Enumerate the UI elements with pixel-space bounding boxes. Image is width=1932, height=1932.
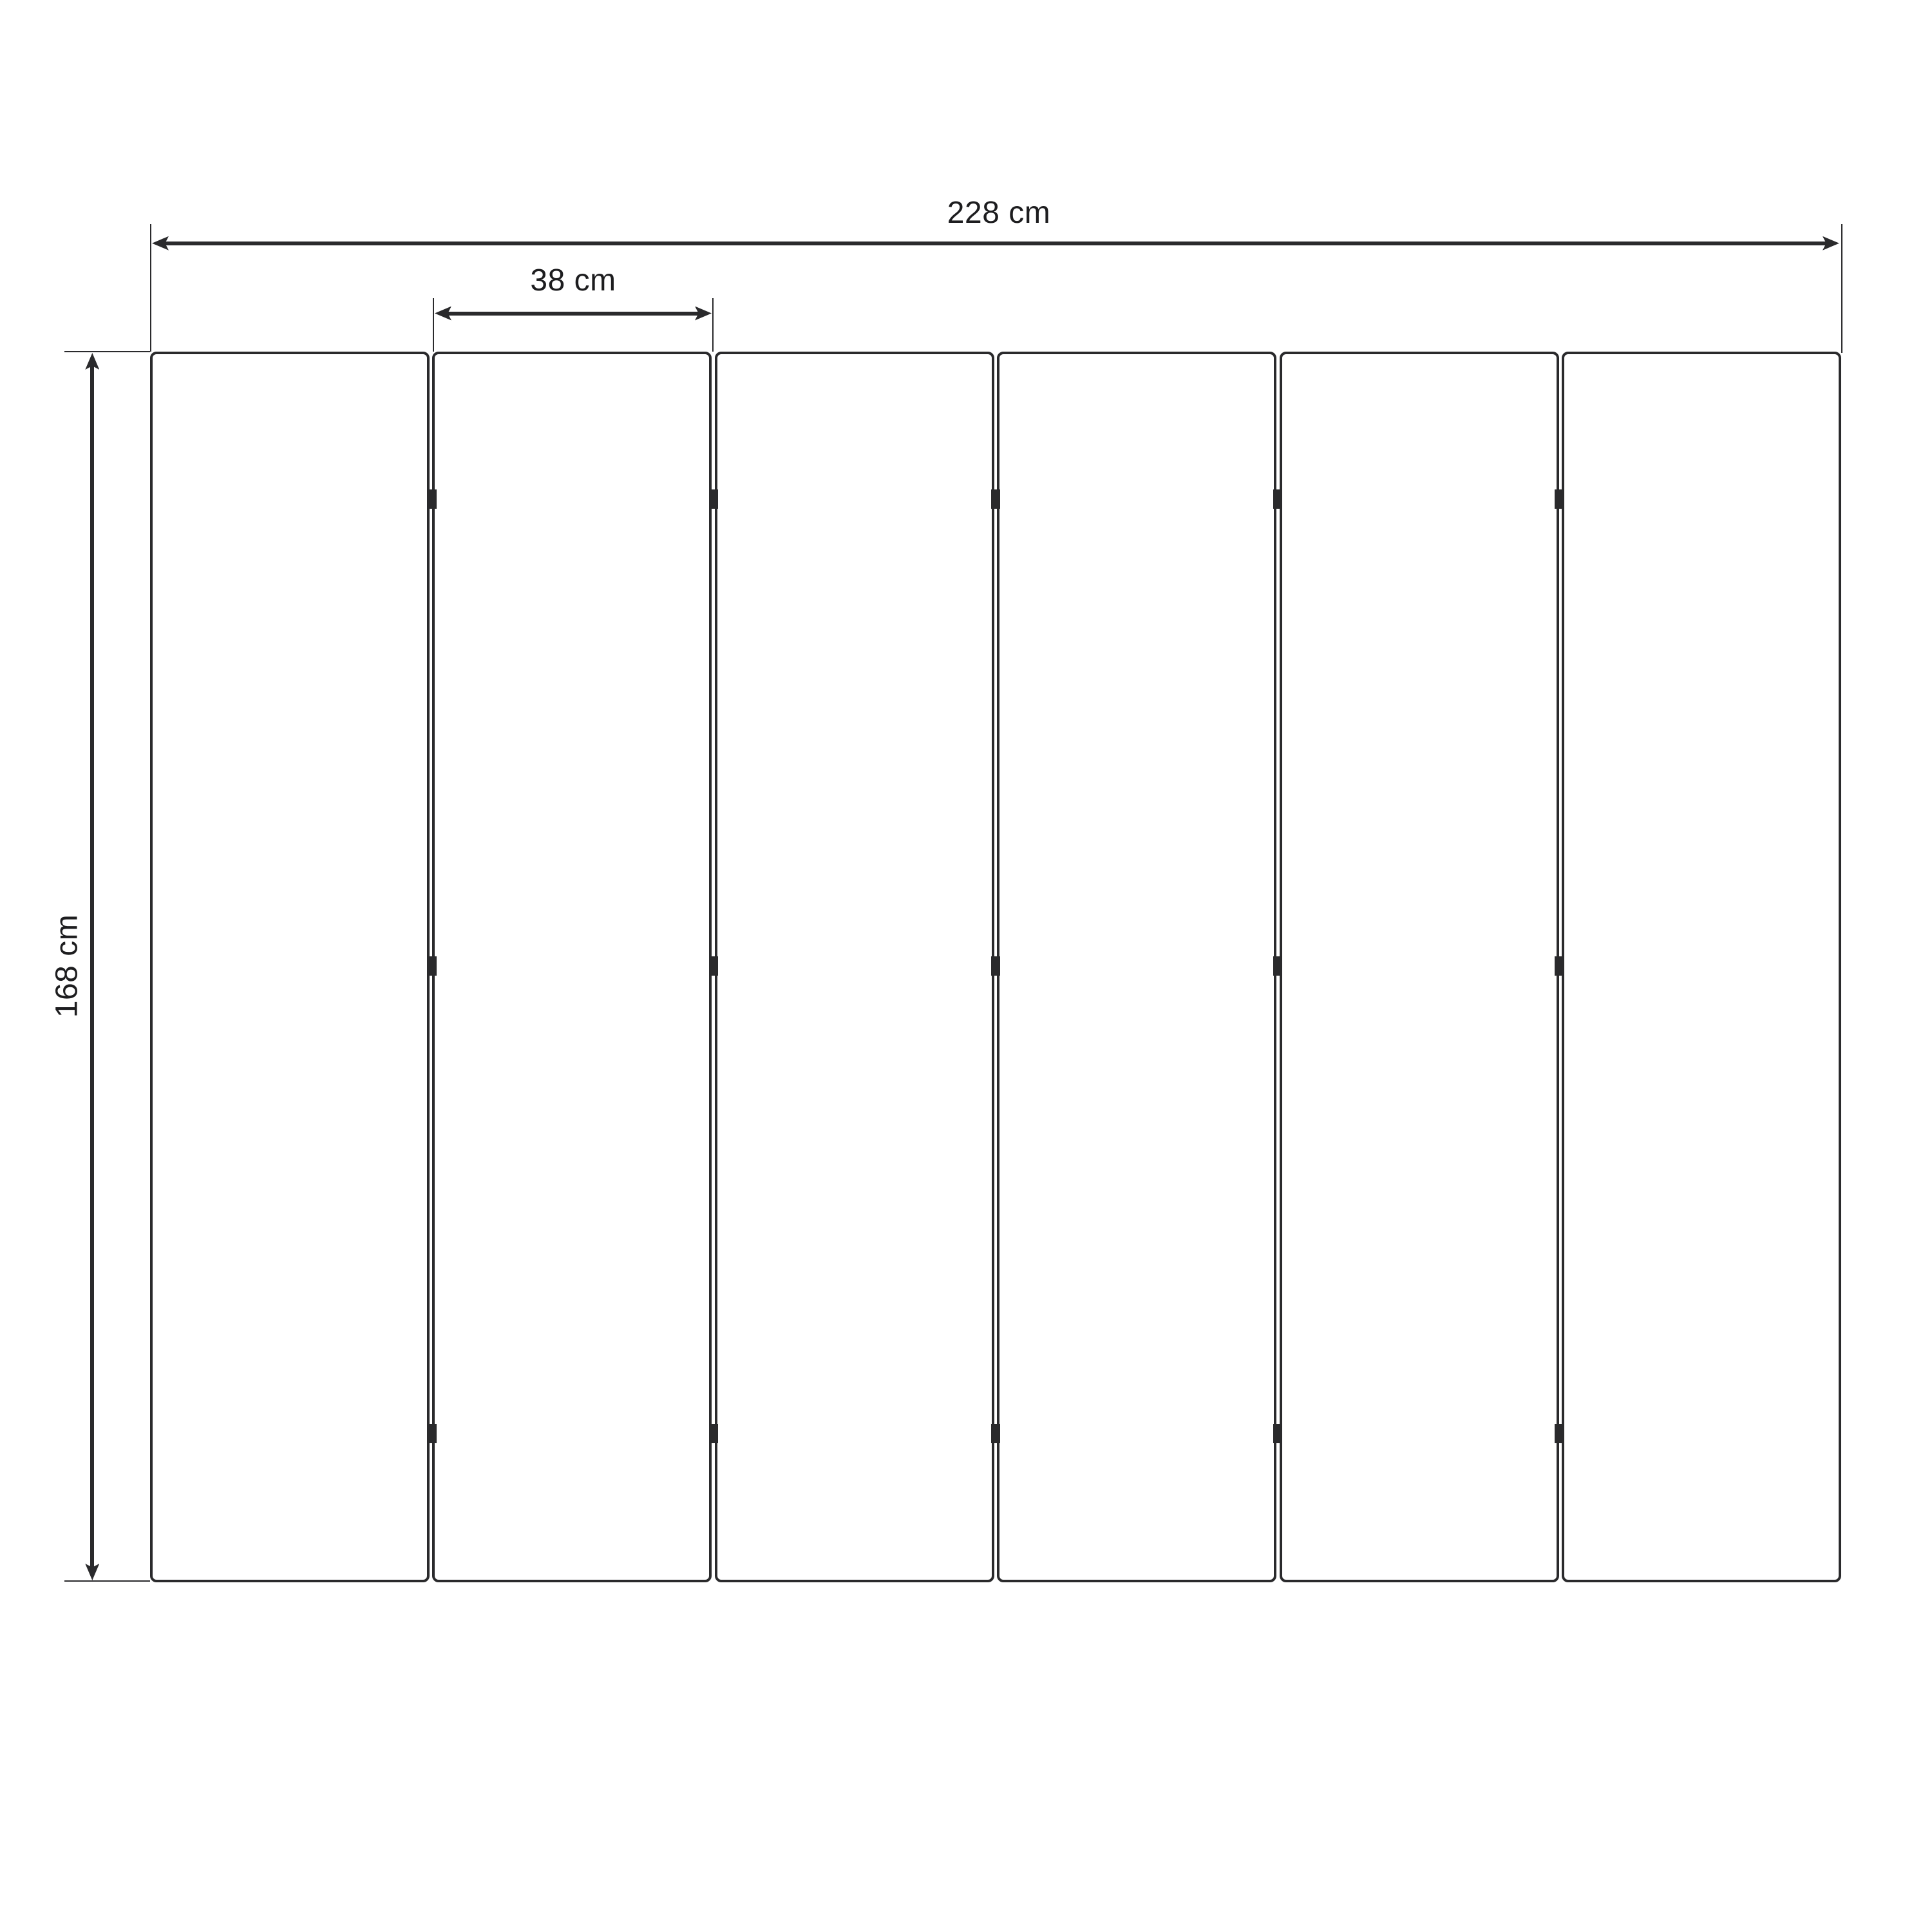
hinge-mark bbox=[991, 1424, 1000, 1443]
extension-line-panel-left bbox=[433, 298, 434, 352]
hinge-mark bbox=[428, 489, 437, 509]
hinge-mark bbox=[709, 1424, 718, 1443]
total-width-label: 228 cm bbox=[947, 195, 1050, 231]
hinge-mark bbox=[1273, 956, 1282, 976]
dimension-line-panel bbox=[446, 312, 701, 316]
hinge-mark bbox=[1273, 1424, 1282, 1443]
extension-line-height-bottom bbox=[64, 1580, 150, 1582]
panel-2 bbox=[432, 352, 712, 1582]
panel-1 bbox=[150, 352, 430, 1582]
panel-4 bbox=[997, 352, 1276, 1582]
hinge-mark bbox=[991, 956, 1000, 976]
extension-line-total-right bbox=[1841, 224, 1842, 353]
extension-line-height-top bbox=[64, 351, 150, 352]
hinge-mark bbox=[991, 489, 1000, 509]
panel-width-label: 38 cm bbox=[530, 263, 616, 298]
extension-line-total-left bbox=[150, 224, 151, 352]
hinge-mark bbox=[428, 956, 437, 976]
extension-line-panel-right bbox=[712, 298, 714, 352]
hinge-mark bbox=[1555, 489, 1564, 509]
hinge-mark bbox=[1555, 1424, 1564, 1443]
hinge-mark bbox=[428, 1424, 437, 1443]
panel-6 bbox=[1562, 352, 1841, 1582]
hinge-mark bbox=[709, 956, 718, 976]
folding-screen-dimension-diagram: 228 cm 38 cm 168 cm bbox=[0, 0, 1932, 1932]
hinge-mark bbox=[1273, 489, 1282, 509]
panels-row bbox=[150, 352, 1841, 1582]
dimension-line-total bbox=[162, 241, 1829, 245]
height-label: 168 cm bbox=[49, 914, 84, 1018]
hinge-mark bbox=[709, 489, 718, 509]
panel-5 bbox=[1280, 352, 1559, 1582]
panel-3 bbox=[715, 352, 994, 1582]
hinge-mark bbox=[1555, 956, 1564, 976]
dimension-line-height bbox=[90, 365, 94, 1569]
